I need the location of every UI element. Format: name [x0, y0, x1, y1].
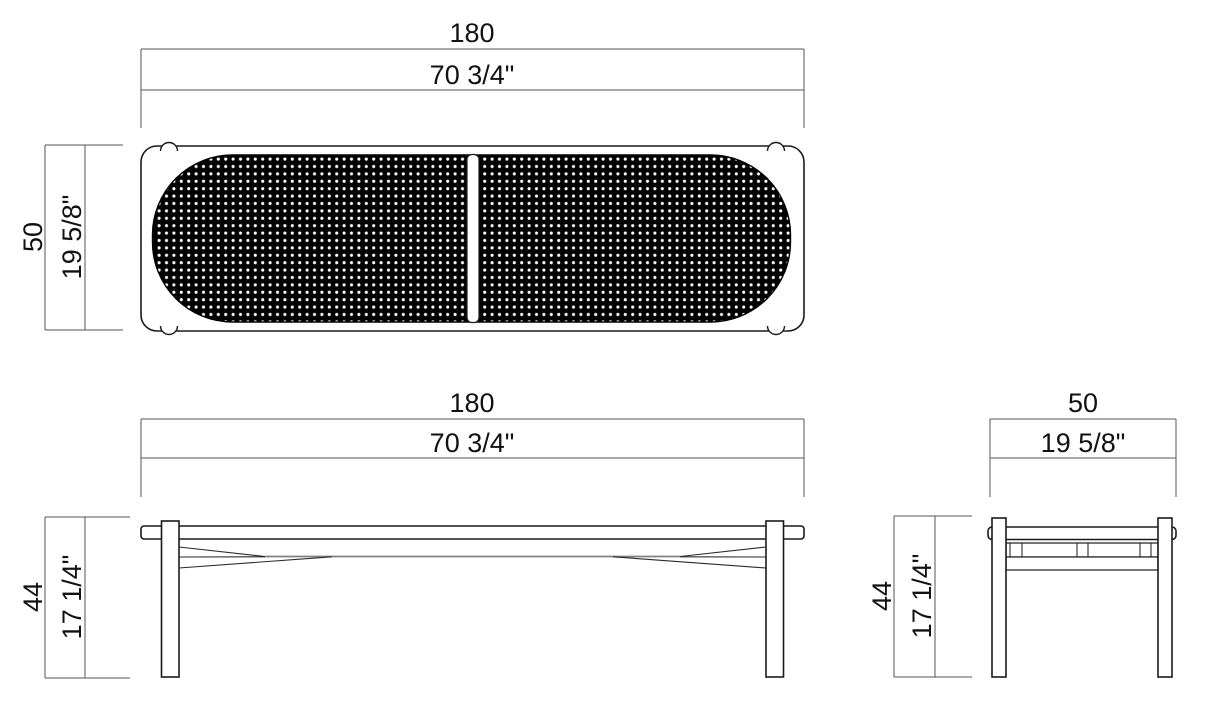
- seat-rail: [141, 526, 804, 539]
- leg-post-bump-top-right: [768, 143, 785, 152]
- dimension-label-imperial: 19 5/8": [1041, 428, 1126, 458]
- seat-rail-end: [988, 527, 1176, 540]
- leg-post-bump-top-left: [161, 143, 178, 152]
- front-view-part: [141, 521, 804, 677]
- dimension-label-imperial: 17 1/4": [57, 555, 87, 640]
- brace-right-bottom: [613, 557, 766, 568]
- front-view: 180 70 3/4" 44 17 1/4": [18, 388, 804, 678]
- dimension-label-metric: 44: [18, 582, 48, 612]
- top-view: 180 70 3/4" 50 19 5/8": [18, 18, 804, 335]
- front-view-height-dimension: 44 17 1/4": [18, 517, 130, 678]
- dimension-label-imperial: 70 3/4": [430, 60, 515, 90]
- leg-post-bump-bottom-right: [768, 326, 785, 335]
- dimension-label-metric: 180: [449, 388, 494, 418]
- leg-post-bump-bottom-left: [161, 326, 178, 335]
- upper-stretcher-rail: [1006, 543, 1158, 557]
- top-view-width-dimension: 180 70 3/4": [141, 18, 804, 128]
- dimension-label-metric: 50: [1068, 388, 1098, 418]
- top-view-part: [141, 143, 804, 335]
- side-view: 50 19 5/8" 44 17 1/4": [867, 388, 1176, 677]
- side-view-part: [988, 518, 1176, 677]
- center-divider-rail: [467, 155, 479, 323]
- front-view-width-dimension: 180 70 3/4": [141, 388, 804, 497]
- dimension-label-metric: 180: [449, 18, 494, 48]
- bench-technical-drawing: 180 70 3/4" 50 19 5/8": [0, 0, 1230, 702]
- lower-stretcher-rail: [1006, 557, 1158, 570]
- front-left-leg: [162, 521, 180, 677]
- dimension-label-metric: 50: [18, 222, 48, 252]
- side-left-leg: [992, 518, 1006, 677]
- brace-left-bottom: [179, 557, 332, 568]
- side-view-width-dimension: 50 19 5/8": [990, 388, 1176, 497]
- side-right-leg: [1158, 518, 1172, 677]
- dimension-label-imperial: 17 1/4": [907, 554, 937, 639]
- dimension-label-imperial: 19 5/8": [57, 195, 87, 280]
- side-view-height-dimension: 44 17 1/4": [867, 516, 972, 677]
- brace-right-top: [680, 547, 766, 557]
- dimension-label-imperial: 70 3/4": [430, 428, 515, 458]
- dimension-label-metric: 44: [867, 581, 897, 611]
- front-right-leg: [766, 521, 784, 677]
- top-view-depth-dimension: 50 19 5/8": [18, 145, 123, 330]
- brace-left-top: [179, 547, 265, 557]
